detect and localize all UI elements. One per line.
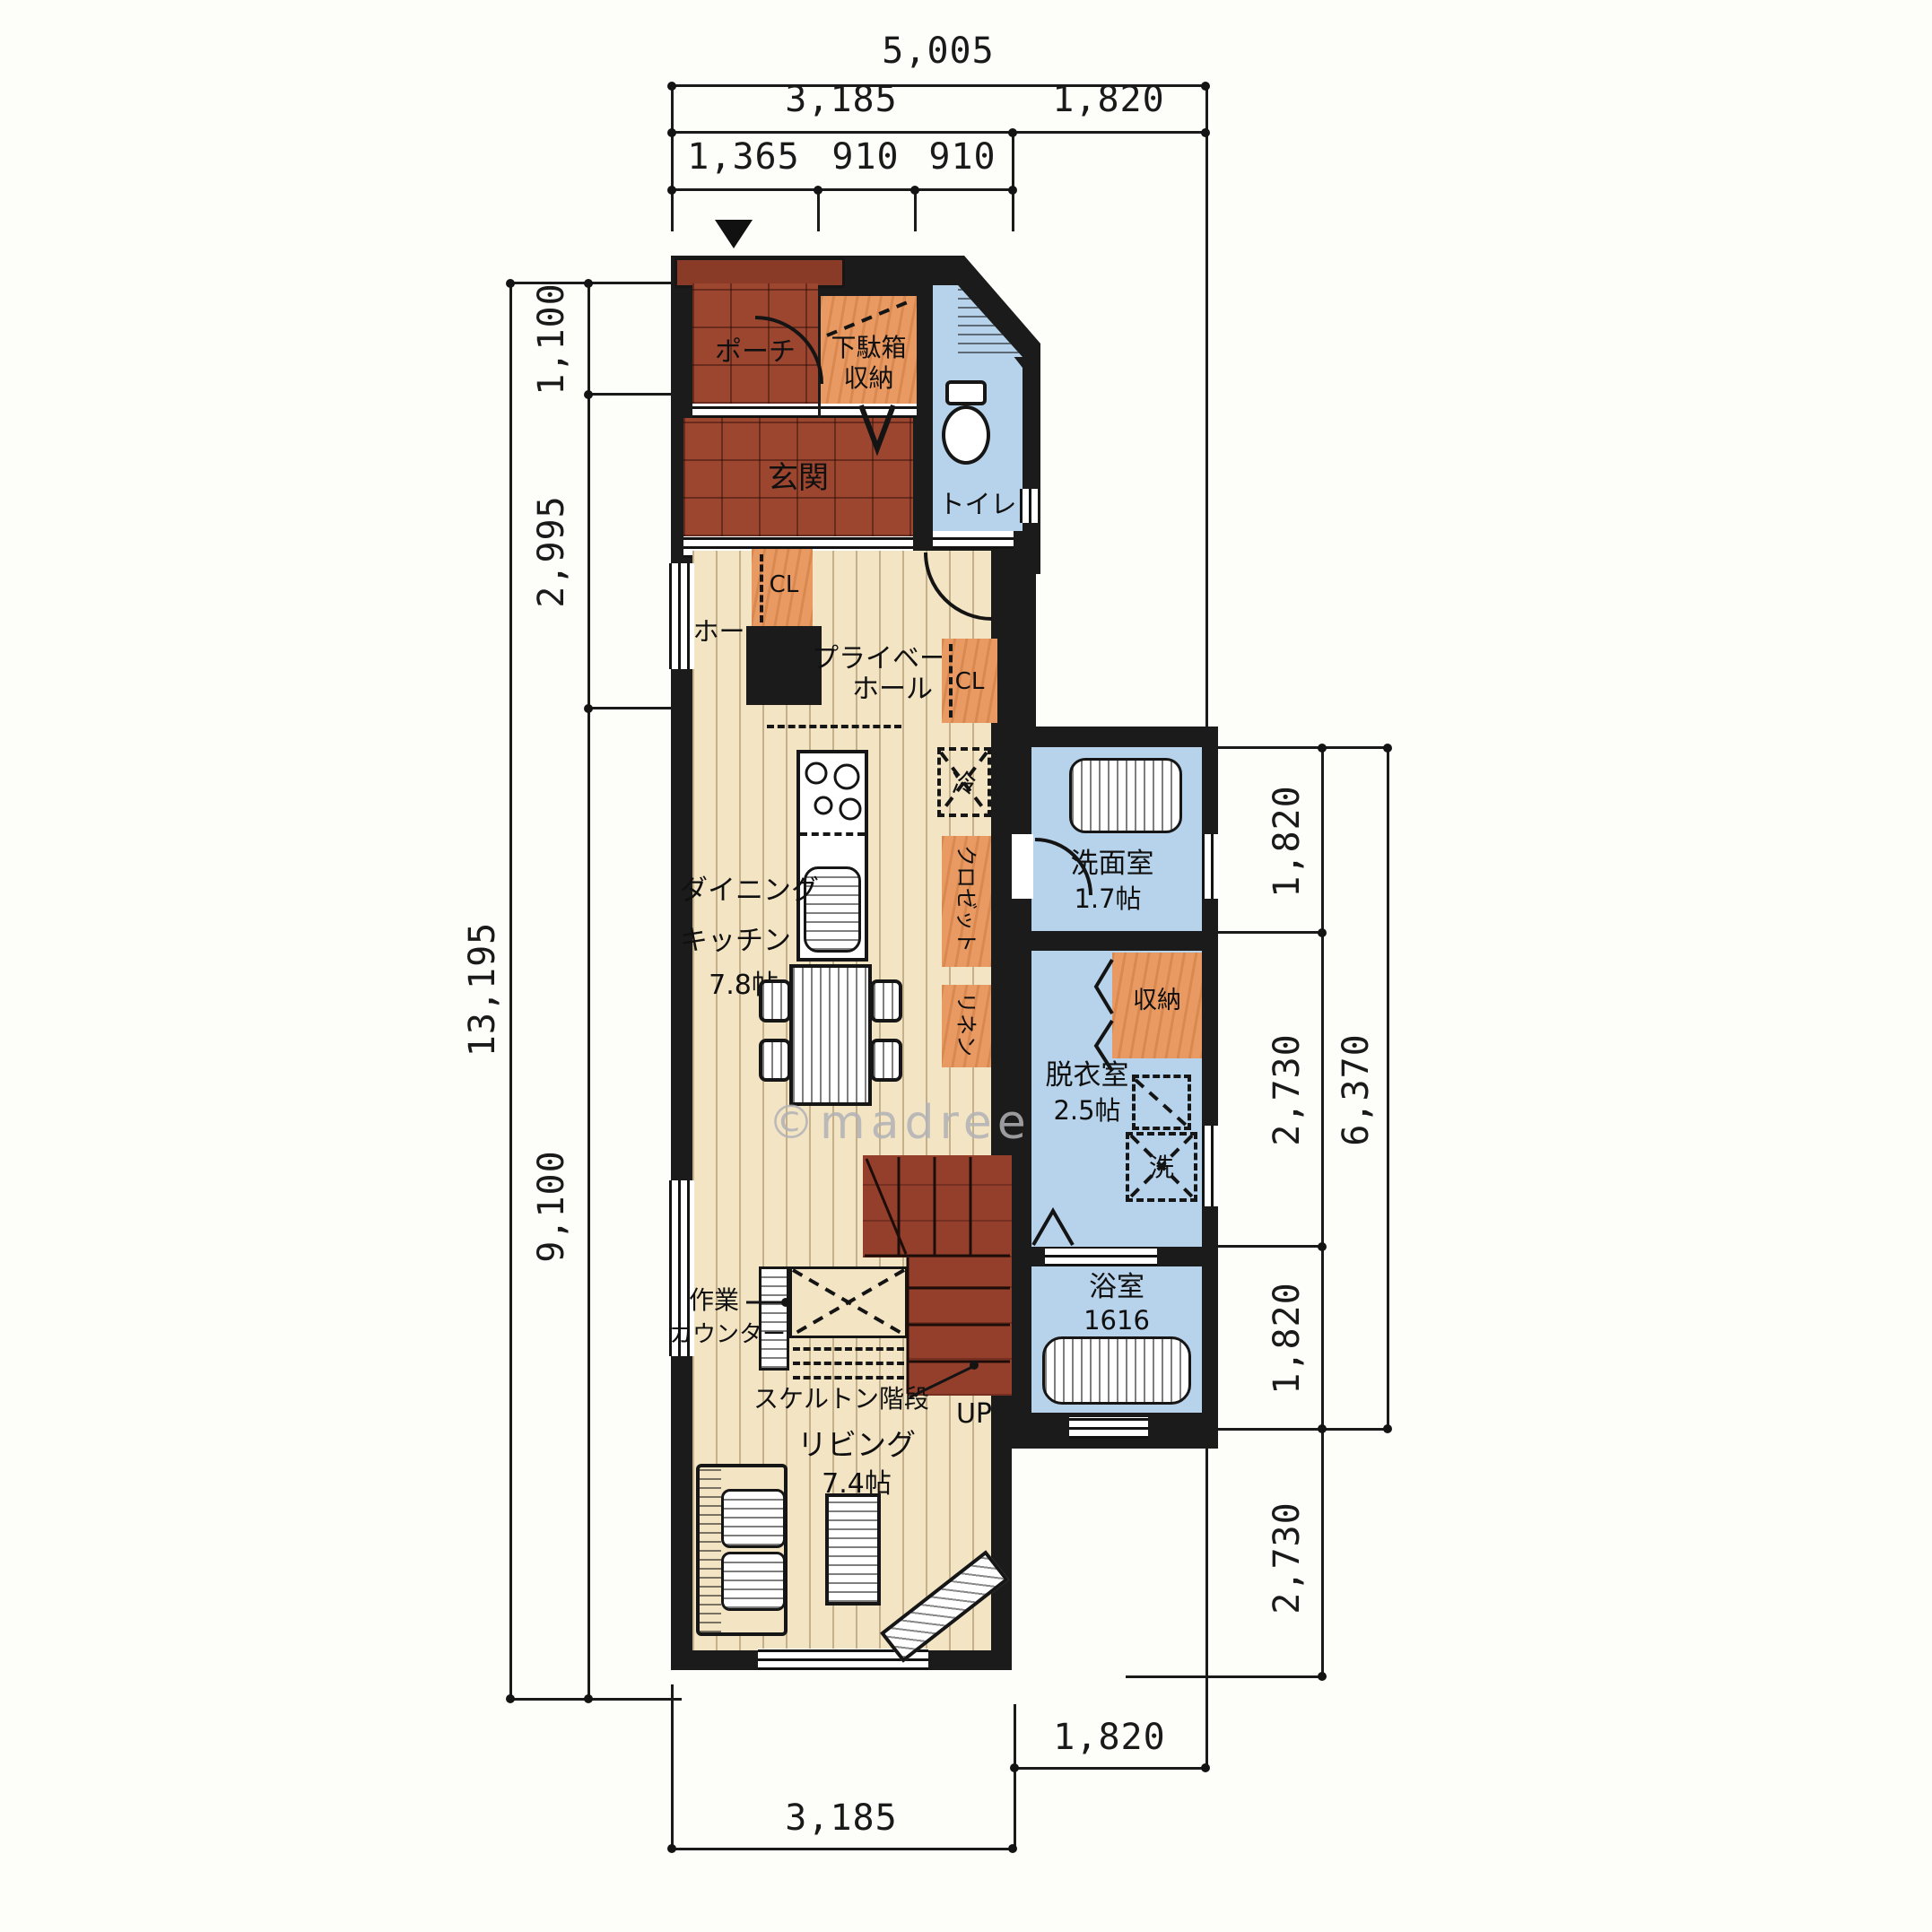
dim-label-1820-top: 1,820 <box>1019 79 1198 120</box>
hall-dk-opening <box>767 725 901 728</box>
bathtub <box>1042 1336 1191 1405</box>
dim-line-bottom-1820 <box>1014 1767 1206 1770</box>
dim-label-1820-r1: 1,820 <box>1266 770 1308 913</box>
room-label-washroom-size: 1.7帖 <box>1031 884 1184 914</box>
stairs-label: スケルトン階段 <box>753 1385 915 1414</box>
room-label-entrance: 玄関 <box>683 461 913 496</box>
tv-board <box>825 1493 881 1606</box>
bath-door <box>1045 1247 1157 1266</box>
dim-label-6370: 6,370 <box>1336 1018 1377 1162</box>
dim-ext <box>914 188 917 231</box>
dim-label-910b: 910 <box>900 136 1025 178</box>
dim-label-2730-r2: 2,730 <box>1266 1486 1308 1630</box>
dim-label-1100: 1,100 <box>531 267 572 411</box>
stairs-lower-flight <box>908 1258 1012 1396</box>
dim-line-right-inner <box>1321 746 1324 1679</box>
washer-label: 洗 <box>1126 1153 1197 1182</box>
room-label-shoe-1: 下駄箱 <box>821 334 917 362</box>
dressing-window <box>1202 1126 1218 1206</box>
toilet-tank <box>945 380 987 405</box>
dim-label-3185-bottom: 3,185 <box>752 1797 931 1839</box>
stair-tread-dash <box>793 1347 904 1351</box>
dim-ext <box>509 1698 682 1701</box>
sofa-cushion <box>721 1552 786 1611</box>
shoe-threshold <box>821 404 917 418</box>
dim-line-bottom-3185 <box>671 1848 1014 1850</box>
dining-table <box>789 964 872 1106</box>
room-label-shoe-2: 収納 <box>821 364 917 393</box>
dim-ext <box>587 393 682 396</box>
sofa-cushion <box>721 1489 786 1548</box>
room-label-living: リビング <box>789 1428 924 1462</box>
washer-pan <box>1132 1075 1191 1130</box>
pantry-upper-label: クロゼット <box>955 836 977 962</box>
toilet-door-threshold <box>933 531 1014 549</box>
floor-plan-canvas: 5,005 3,185 1,820 1,365 910 910 13,195 1… <box>0 0 1932 1932</box>
dim-ext <box>1216 931 1323 934</box>
dim-label-3185-top: 3,185 <box>752 79 931 120</box>
porch-threshold <box>692 404 818 418</box>
stair-tread-dash <box>793 1376 904 1379</box>
chair <box>870 1039 902 1082</box>
dim-label-1820-r2: 1,820 <box>1266 1266 1308 1410</box>
wing-storage-label: 収納 <box>1112 987 1202 1014</box>
dim-ext <box>1205 1446 1208 1769</box>
fridge-label: 冷 <box>937 770 991 798</box>
chair <box>870 979 902 1023</box>
dim-ext <box>1205 84 1208 748</box>
dim-ext <box>1126 1675 1323 1678</box>
closet-1-label: CL <box>755 572 813 599</box>
room-label-bath: 浴室 <box>1036 1272 1197 1304</box>
chair <box>759 979 791 1023</box>
bath-window <box>1069 1417 1148 1439</box>
hall-window <box>669 563 694 669</box>
dim-label-5005: 5,005 <box>849 30 1028 72</box>
dim-label-2995: 2,995 <box>531 480 572 623</box>
dim-ext <box>817 188 820 231</box>
washroom-door-gap <box>1012 834 1033 899</box>
toilet-window <box>1020 489 1038 523</box>
up-label: UP <box>947 1399 1001 1431</box>
kitchen-divider <box>800 832 865 836</box>
dim-ext <box>1216 1245 1323 1248</box>
stairs-upper-flight <box>863 1155 1012 1258</box>
dim-ext <box>671 1684 674 1849</box>
room-label-dressing-size: 2.5帖 <box>1030 1096 1144 1126</box>
room-label-bath-size: 1616 <box>1036 1306 1197 1336</box>
dim-line-right-outer <box>1387 746 1389 1430</box>
dim-label-2730-r1: 2,730 <box>1266 1018 1308 1162</box>
dim-label-1820-bottom: 1,820 <box>1020 1717 1199 1758</box>
washbasin <box>1069 758 1182 833</box>
work-counter <box>759 1266 789 1371</box>
dim-ext <box>1216 1428 1388 1431</box>
sofa-back <box>700 1467 721 1632</box>
washroom-window <box>1202 834 1218 899</box>
entrance-marker-icon <box>715 220 753 248</box>
pantry-lower-label: リネン <box>955 984 977 1065</box>
room-label-dressing: 脱衣室 <box>1030 1060 1144 1092</box>
stair-tread-dash <box>793 1362 904 1365</box>
dim-line-left-outer <box>509 282 512 1701</box>
dim-ext <box>1216 746 1388 749</box>
dim-label-9100: 9,100 <box>531 1135 572 1278</box>
dim-ext <box>587 707 682 709</box>
room-label-toilet: トイレ <box>929 490 1026 519</box>
work-counter-label-1: 作業 <box>678 1286 750 1315</box>
dim-ext <box>1014 1704 1016 1849</box>
toilet-bowl <box>942 405 990 465</box>
work-counter-label-2: カウンター <box>669 1322 759 1349</box>
room-label-dk-2: キッチン <box>680 926 782 958</box>
room-label-dk-1: ダイニング <box>680 875 798 908</box>
room-label-porch: ポーチ <box>692 337 818 369</box>
dim-line-top-3 <box>671 188 1012 191</box>
closet-2-label: CL <box>942 669 997 696</box>
stair-void <box>789 1266 908 1338</box>
watermark: ©madree <box>768 1096 1031 1150</box>
room-label-washroom: 洗面室 <box>1031 849 1193 881</box>
dim-label-13195: 13,195 <box>462 909 503 1070</box>
chair <box>759 1039 791 1082</box>
dim-line-left-inner <box>587 282 590 1701</box>
dim-label-1365: 1,365 <box>667 136 820 178</box>
dim-line-top-2 <box>671 131 1206 134</box>
